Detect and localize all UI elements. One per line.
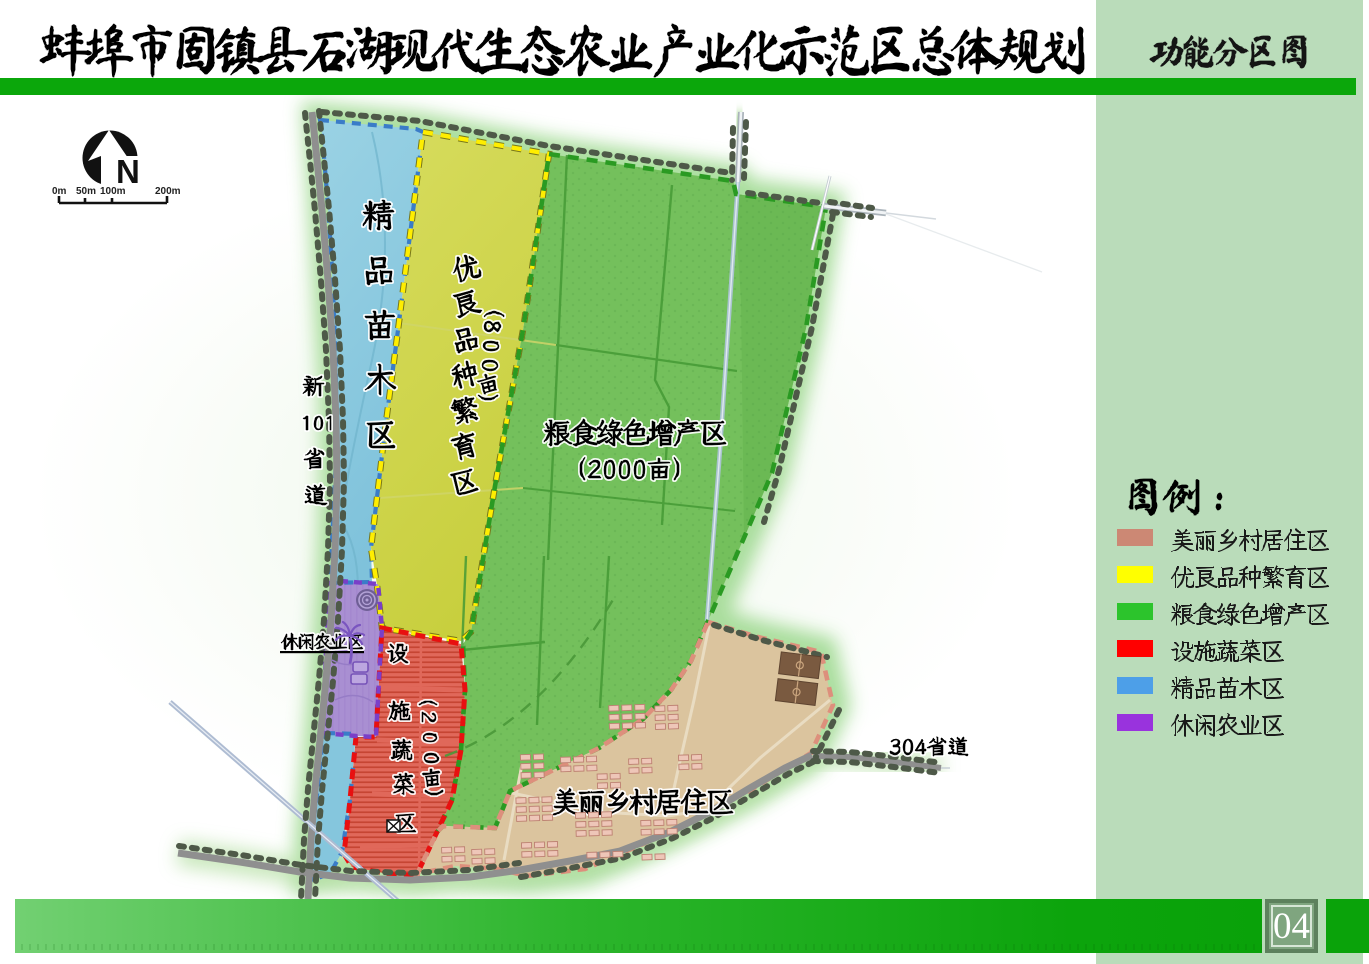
svg-text:100m: 100m [100, 186, 126, 197]
svg-text:0m: 0m [52, 186, 67, 197]
svg-text:50m: 50m [76, 186, 96, 197]
svg-text:200m: 200m [155, 186, 181, 197]
